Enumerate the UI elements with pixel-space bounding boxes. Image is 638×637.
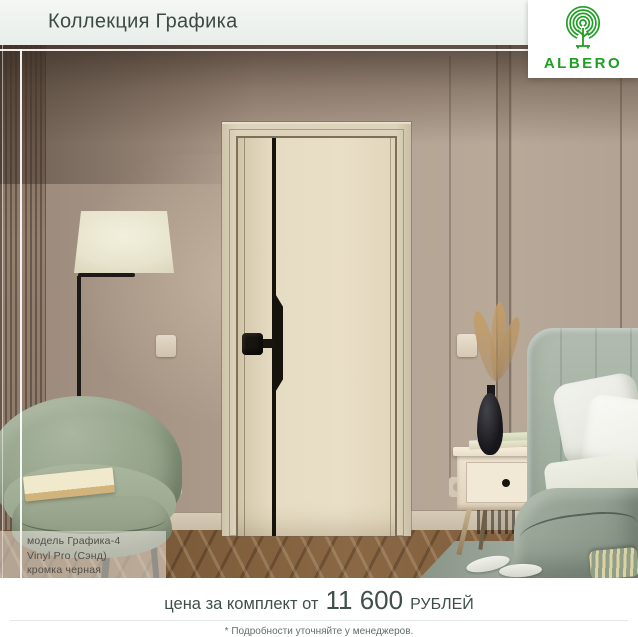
model-edge: кромка черная xyxy=(27,563,166,578)
price-value: 11 600 xyxy=(325,587,403,613)
price-prefix: цена за комплект от xyxy=(164,595,318,614)
armchair-seam xyxy=(18,504,166,534)
price-currency: РУБЛЕЙ xyxy=(410,596,474,614)
price-line: цена за комплект от 11 600 РУБЛЕЙ xyxy=(0,578,638,614)
light-switch xyxy=(457,334,477,357)
floor-lamp-shade xyxy=(74,211,174,273)
footer-divider xyxy=(10,620,628,621)
model-label: модель Графика-4 Vinyl Pro (Сэнд) кромка… xyxy=(0,531,166,578)
drawer-knob xyxy=(502,479,510,487)
model-finish: Vinyl Pro (Сэнд) xyxy=(27,549,166,564)
floor-lamp-arm xyxy=(78,273,135,277)
footnote: * Подробности уточняйте у менеджеров. xyxy=(0,626,638,637)
model-name: модель Графика-4 xyxy=(27,534,166,549)
light-switch xyxy=(156,335,176,357)
collection-title: Коллекция Графика xyxy=(48,11,238,34)
brand-name: ALBERO xyxy=(528,55,638,72)
door-handle xyxy=(242,333,263,355)
door-groove xyxy=(390,138,391,536)
room-photo: модель Графика-4 Vinyl Pro (Сэнд) кромка… xyxy=(0,44,638,578)
ad-banner: модель Графика-4 Vinyl Pro (Сэнд) кромка… xyxy=(0,0,638,637)
photo-left-edge-line xyxy=(2,44,3,578)
albero-tree-icon xyxy=(556,4,610,50)
decor-frame-line-left xyxy=(20,49,22,578)
striped-pillow xyxy=(589,547,638,578)
price-bar: цена за комплект от 11 600 РУБЛЕЙ * Подр… xyxy=(0,578,638,637)
brand-logo-card: ALBERO xyxy=(528,0,638,78)
